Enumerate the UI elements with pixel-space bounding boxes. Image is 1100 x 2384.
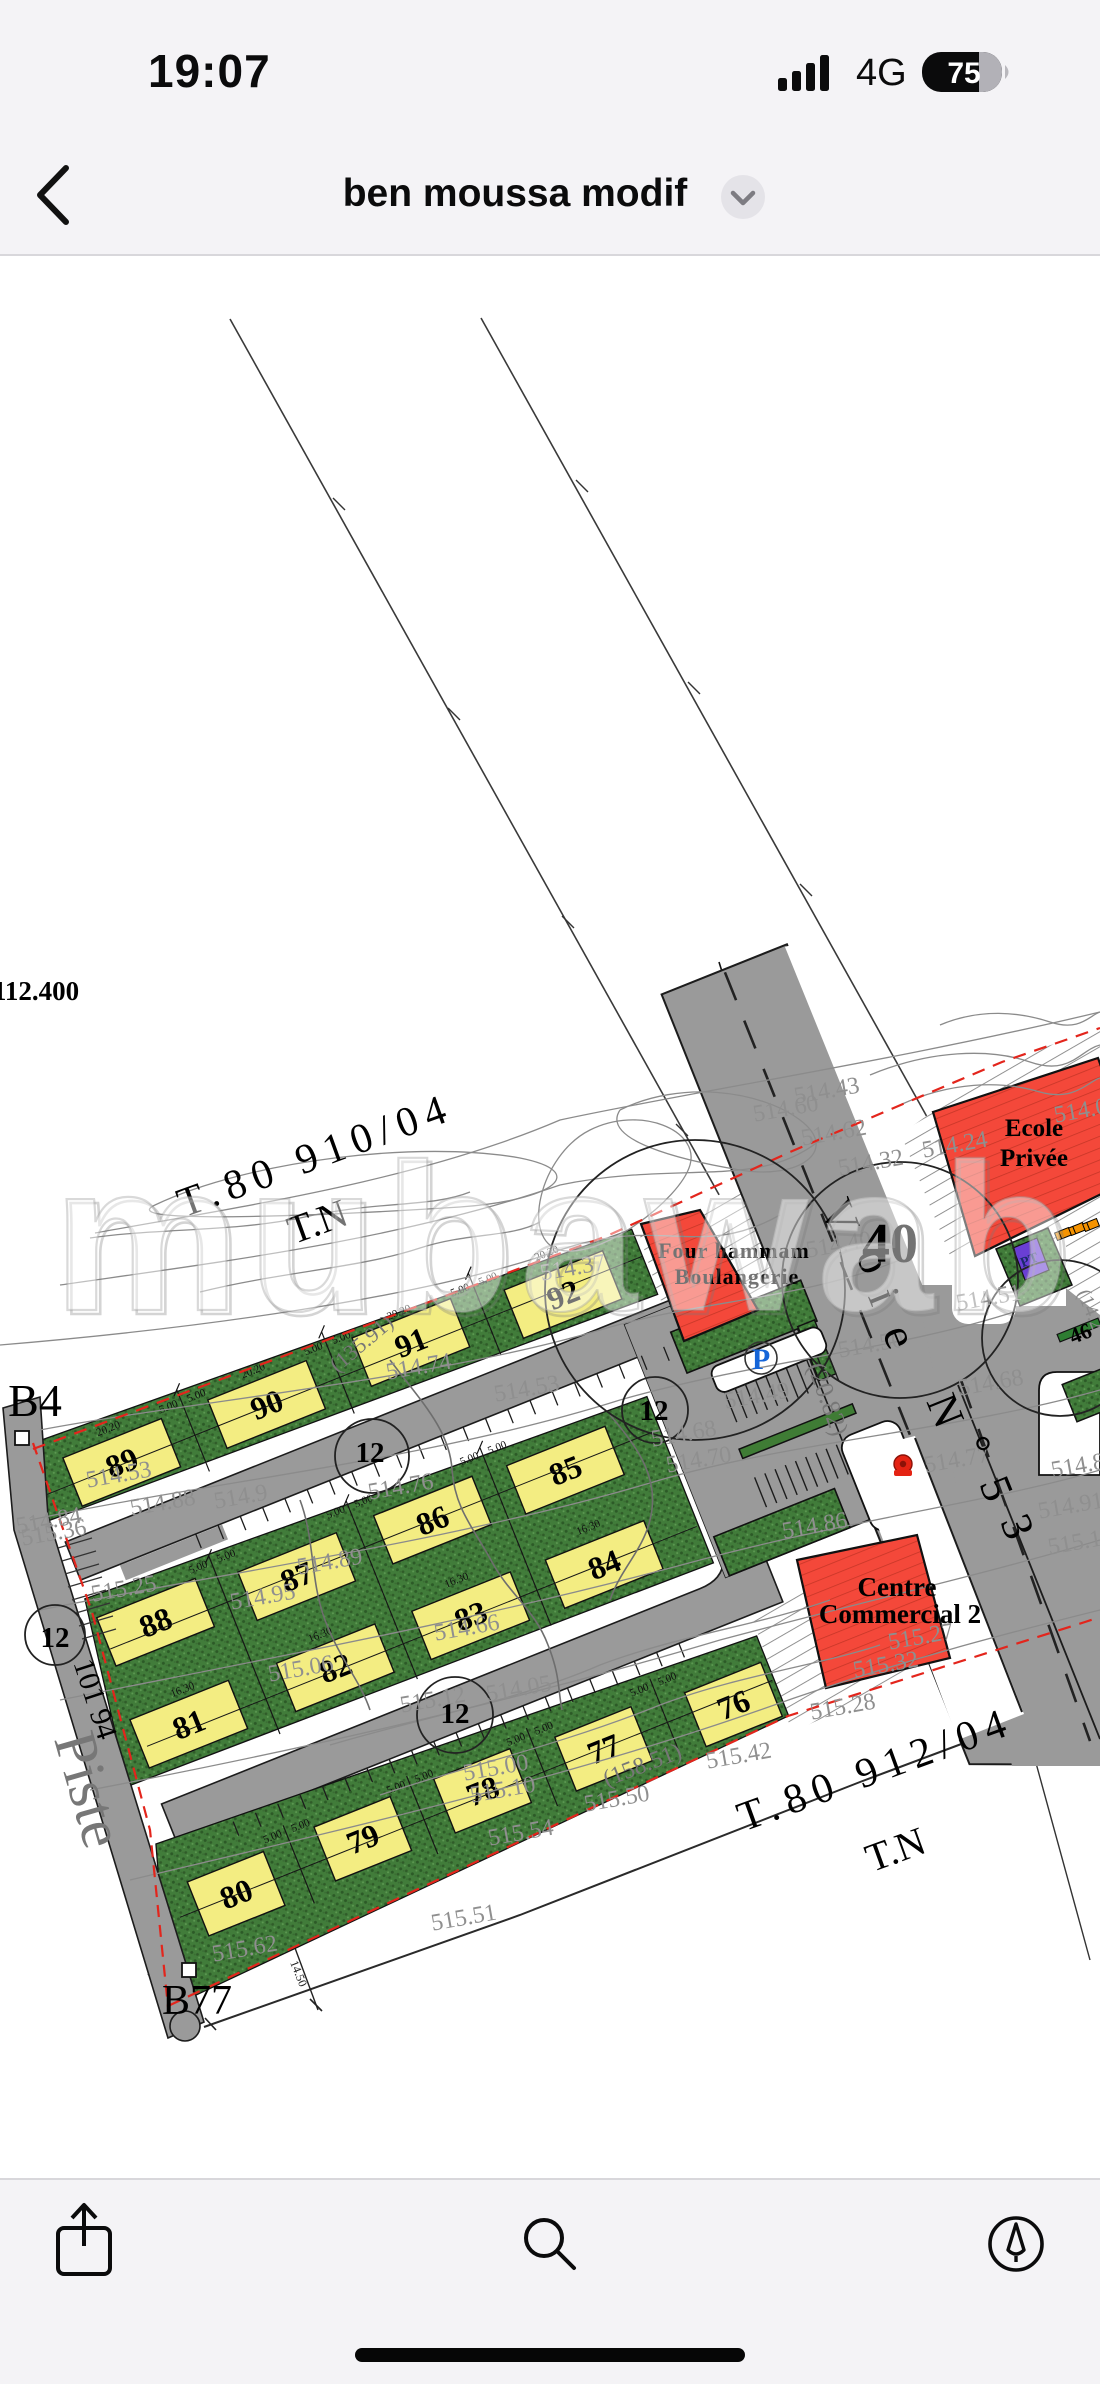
svg-text:75: 75 [947,57,980,90]
svg-text:B4: B4 [8,1375,62,1426]
svg-text:B77: B77 [162,1978,232,2024]
svg-text:Commercial 2: Commercial 2 [819,1599,981,1629]
svg-text:515.51: 515.51 [429,1900,499,1937]
svg-text:112.400: 112.400 [0,976,79,1006]
svg-text:14.50: 14.50 [287,1958,310,1988]
svg-text:mubawab: mubawab [53,1120,1077,1355]
svg-text:T.N: T.N [859,1818,931,1881]
svg-text:Centre: Centre [858,1572,937,1602]
svg-text:12: 12 [41,1622,70,1654]
svg-text:12: 12 [356,1437,385,1469]
svg-text:12: 12 [640,1395,669,1427]
